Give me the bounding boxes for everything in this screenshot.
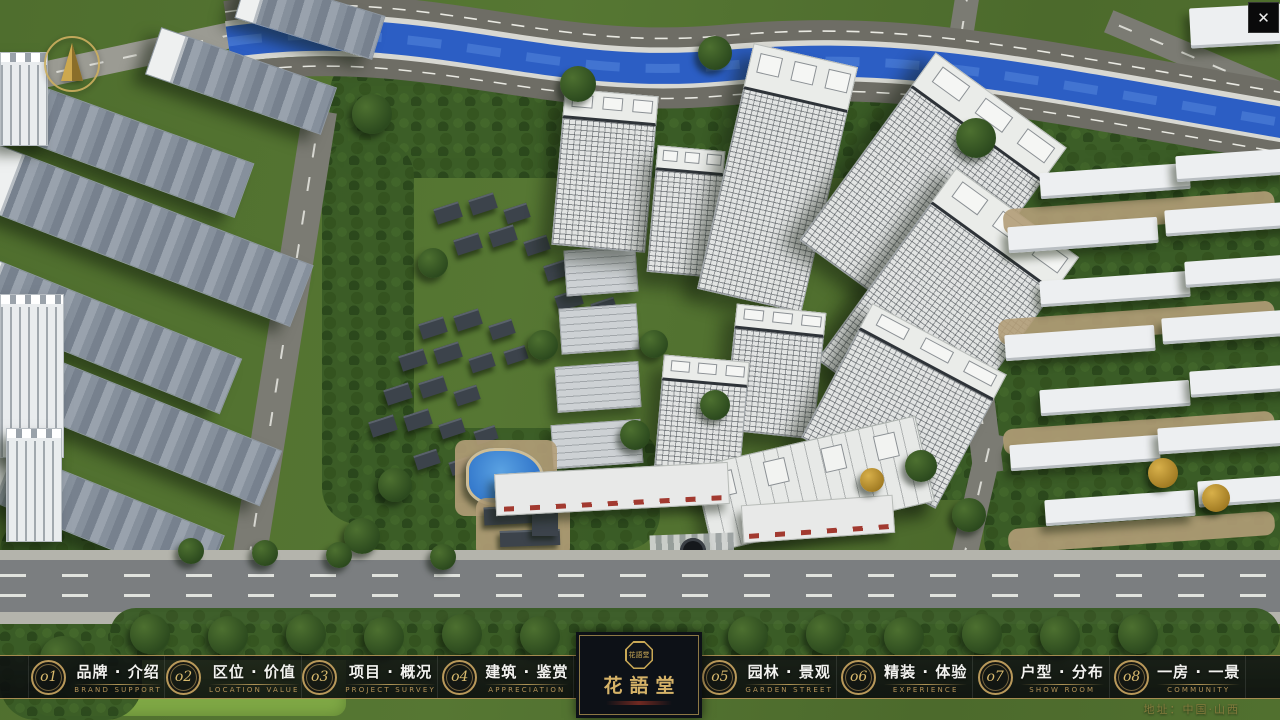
nav-label-en: LOCATION VALUE <box>209 686 300 694</box>
villa <box>418 375 448 398</box>
tree <box>286 614 326 654</box>
menu-left-group: o1 品牌 · 介绍BRAND SUPPORT o2 区位 · 价值LOCATI… <box>0 656 574 698</box>
tree <box>1148 458 1178 488</box>
tree <box>130 614 170 654</box>
tree <box>528 330 558 360</box>
item-number-badge: o7 <box>978 660 1013 695</box>
villa <box>488 319 515 341</box>
brand-subtitle-mark <box>606 701 672 705</box>
item-number-badge: o3 <box>302 660 337 695</box>
nav-item-garden-landscape[interactable]: o5 园林 · 景观GARDEN STREET <box>700 656 837 698</box>
nav-label-zh: 精装 · 体验 <box>884 661 967 682</box>
building-highrise <box>551 88 658 253</box>
tree <box>806 614 846 654</box>
tree <box>252 540 278 566</box>
tree <box>640 330 668 358</box>
address-text: 地址：中国·山西 <box>1144 701 1241 717</box>
nav-item-deluxe-experience[interactable]: o6 精装 · 体验EXPERIENCE <box>837 656 974 698</box>
villa <box>488 224 518 247</box>
menu-right-group: o5 园林 · 景观GARDEN STREET o6 精装 · 体验EXPERI… <box>700 656 1280 698</box>
building-midrise <box>554 361 641 413</box>
nav-label-en: GARDEN STREET <box>745 686 833 694</box>
aerial-render <box>0 0 1280 720</box>
nav-label-en: COMMUNITY <box>1167 686 1230 694</box>
nav-label-zh: 项目 · 概况 <box>349 661 432 682</box>
villa <box>468 192 498 215</box>
nav-item-location-value[interactable]: o2 区位 · 价值LOCATION VALUE <box>165 656 301 698</box>
presentation-screen: ✕ o1 品牌 · 介绍BRAND SUPPORT o2 区位 · 价值LOCA… <box>0 0 1280 720</box>
tree <box>208 616 248 656</box>
tree <box>860 468 884 492</box>
tree <box>442 614 482 654</box>
tree <box>962 614 1002 654</box>
nav-label-en: SHOW ROOM <box>1029 686 1095 694</box>
nav-item-room-view[interactable]: o8 一房 · 一景COMMUNITY <box>1110 656 1247 698</box>
item-number-badge: o1 <box>31 660 66 695</box>
compass-icon <box>44 36 100 92</box>
close-button[interactable]: ✕ <box>1248 2 1279 33</box>
item-number-badge: o5 <box>702 660 737 695</box>
tree <box>956 118 996 158</box>
building-tower <box>6 428 62 542</box>
nav-label-zh: 园林 · 景观 <box>748 661 831 682</box>
nav-label-en: EXPERIENCE <box>893 686 959 694</box>
tree <box>378 468 412 502</box>
tree <box>418 248 448 278</box>
nav-label-zh: 建筑 · 鉴赏 <box>485 661 568 682</box>
tree <box>430 544 456 570</box>
item-number-badge: o4 <box>442 660 477 695</box>
tree <box>1118 614 1158 654</box>
tree <box>560 66 596 102</box>
nav-label-zh: 品牌 · 介绍 <box>77 661 160 682</box>
tree <box>520 616 560 656</box>
tree <box>352 94 392 134</box>
item-number-badge: o6 <box>841 660 876 695</box>
villa <box>468 352 495 374</box>
villa <box>453 308 483 331</box>
building-midrise <box>563 246 638 297</box>
nav-label-zh: 区位 · 价值 <box>213 661 296 682</box>
tree <box>326 542 352 568</box>
villa <box>433 201 463 224</box>
tree <box>905 450 937 482</box>
villa <box>503 345 528 365</box>
tree <box>1202 484 1230 512</box>
brand-title: 花語堂 <box>596 671 681 698</box>
tree <box>700 390 730 420</box>
nav-item-brand-intro[interactable]: o1 品牌 · 介绍BRAND SUPPORT <box>28 656 165 698</box>
nav-label-en: APPRECIATION <box>488 686 565 694</box>
close-icon: ✕ <box>1257 9 1270 27</box>
building-tower <box>0 52 48 146</box>
villa <box>453 385 480 407</box>
tree <box>1040 616 1080 656</box>
tree <box>728 616 768 656</box>
nav-item-project-overview[interactable]: o3 项目 · 概况PROJECT SURVEY <box>302 656 438 698</box>
tree <box>884 617 924 657</box>
nav-item-architecture[interactable]: o4 建筑 · 鉴赏APPRECIATION <box>438 656 574 698</box>
tree <box>698 36 732 70</box>
seal-emblem-icon: 花語堂 <box>625 641 653 669</box>
villa <box>523 235 550 257</box>
tree <box>952 498 986 532</box>
building-midrise <box>558 303 639 354</box>
nav-label-zh: 户型 · 分布 <box>1021 661 1104 682</box>
tree <box>178 538 204 564</box>
nav-label-en: BRAND SUPPORT <box>74 686 162 694</box>
item-number-badge: o2 <box>166 660 201 695</box>
villa <box>433 341 463 364</box>
villa <box>453 232 483 255</box>
logo-panel[interactable]: 花語堂 花語堂 <box>576 632 702 718</box>
nav-label-zh: 一房 · 一景 <box>1157 661 1240 682</box>
villa <box>418 316 448 339</box>
tree <box>620 420 650 450</box>
item-number-badge: o8 <box>1114 660 1149 695</box>
nav-label-en: PROJECT SURVEY <box>345 686 436 694</box>
nav-item-floorplan-distribution[interactable]: o7 户型 · 分布SHOW ROOM <box>973 656 1110 698</box>
villa <box>503 203 530 225</box>
tree <box>364 617 404 657</box>
